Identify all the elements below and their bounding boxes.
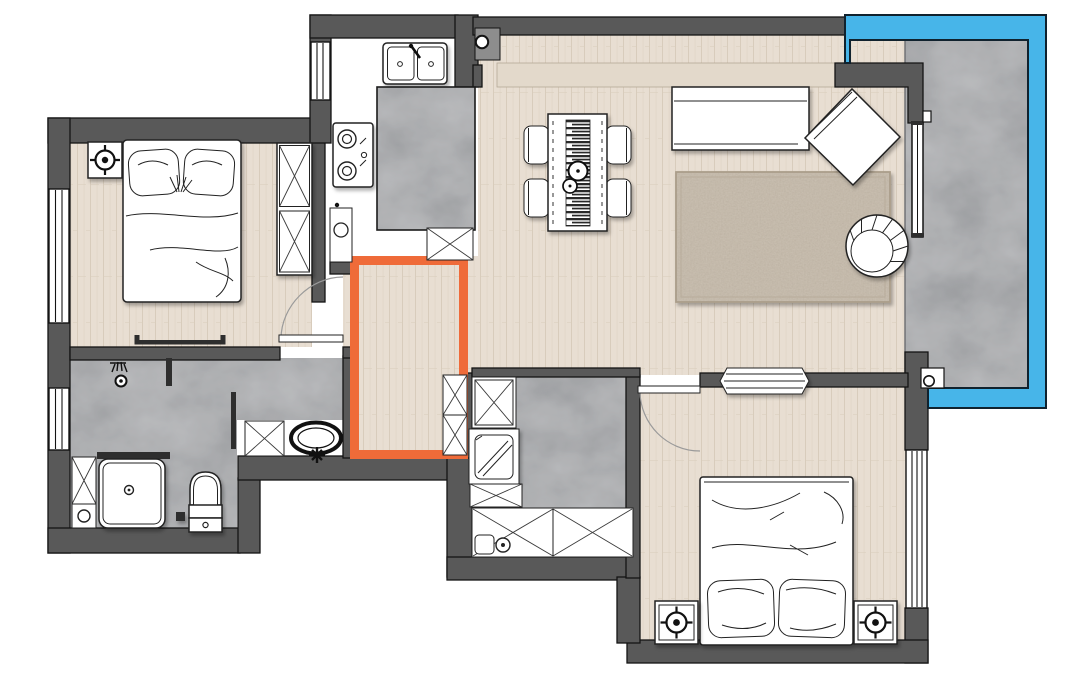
wall-bathroom-right-lower	[238, 478, 260, 553]
wall-entry-step	[473, 65, 482, 87]
wall-bedroom2-right-upper	[905, 352, 928, 450]
sliding-glass-door-icon	[911, 121, 924, 237]
dining-chair-icon	[606, 126, 631, 164]
glass-partition	[231, 392, 236, 449]
round-armchair-icon	[846, 215, 908, 277]
dining-chair-icon	[606, 179, 631, 217]
double-sink-icon	[383, 43, 447, 84]
wall-utility-bottom	[447, 557, 638, 580]
wall-left	[48, 118, 70, 553]
kitchen-window-icon	[311, 42, 330, 100]
wall-utility-step	[617, 577, 640, 643]
wall-kitchen-bedroom1	[312, 140, 325, 302]
bedroom1-window-icon	[49, 189, 69, 323]
counter-sink-icon	[475, 535, 494, 554]
pillow-icon	[182, 148, 235, 196]
wall-kitchen-bottom-stub	[330, 262, 352, 274]
entry-door-pivot-icon	[476, 36, 488, 48]
pillow-icon	[128, 148, 181, 196]
door-track-end	[923, 111, 931, 122]
shower-screen-icon	[97, 452, 170, 459]
curtain-track	[497, 63, 838, 87]
wall-living-top	[473, 17, 850, 35]
shower-tray-icon	[99, 459, 165, 528]
low-cabinet-x-icon	[470, 484, 522, 507]
bathroom-window-icon	[49, 388, 69, 450]
bedroom2-window-icon	[906, 450, 927, 608]
dining-chair-icon	[524, 126, 549, 164]
bed-icon	[123, 140, 241, 302]
gas-hob-icon	[333, 123, 373, 187]
floor-plan-stage	[0, 0, 1080, 679]
pillow-icon	[707, 579, 775, 638]
partition-stub	[166, 358, 172, 386]
base-cabinet-icon	[330, 203, 352, 262]
dining-chair-icon	[524, 179, 549, 217]
utility-counter-icon	[472, 508, 633, 557]
wall-kitchen-top	[310, 15, 458, 38]
marble-island-icon	[377, 87, 475, 230]
floor-drain-icon	[921, 368, 944, 388]
wall-under-vanity	[238, 456, 460, 480]
hallway-cabinets	[443, 375, 467, 455]
wall-bedroom1-bath	[70, 347, 280, 360]
wardrobe-icon	[277, 143, 312, 275]
utility-cabinet-x-icon	[472, 377, 516, 428]
floor-plan-drawing	[0, 0, 1080, 679]
wall-utility-top	[472, 368, 640, 377]
bath-side-cabinet-icon	[72, 457, 96, 528]
washing-machine-icon	[469, 429, 519, 484]
kitchen-cabinet-x-icon	[427, 228, 473, 260]
bed-icon	[700, 477, 853, 645]
tv-console-icon	[720, 368, 809, 394]
